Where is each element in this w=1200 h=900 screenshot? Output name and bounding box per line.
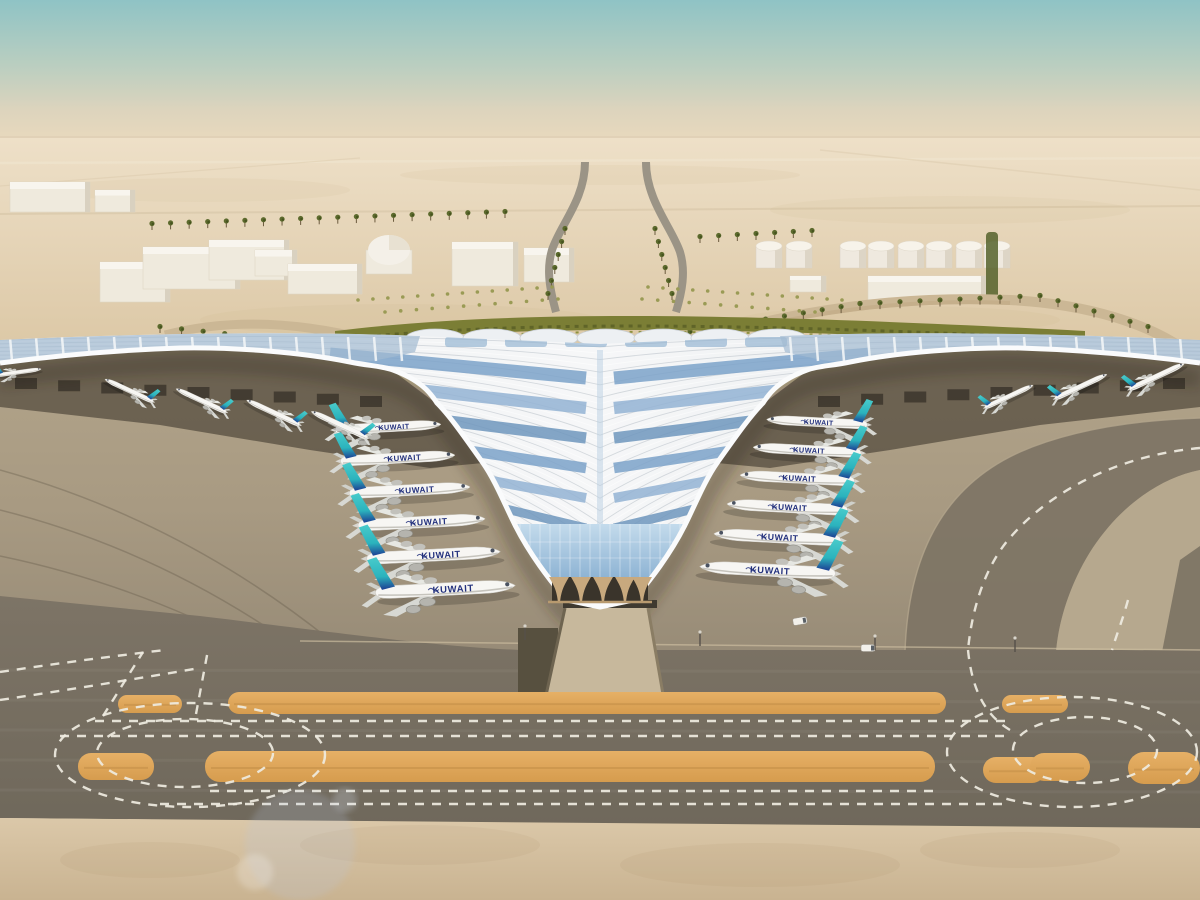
orange-taxiway-strip — [1128, 752, 1200, 784]
shrub — [719, 303, 723, 307]
shrub — [476, 290, 480, 294]
shrub — [461, 291, 465, 295]
warehouse-building — [288, 264, 362, 294]
shrub — [556, 297, 560, 301]
airline-title-text: KUWAIT — [387, 453, 421, 464]
shrub — [520, 287, 524, 291]
shrub — [825, 297, 829, 301]
scene-canvas: KUWAITKUWAITKUWAITKUWAITKUWAITKUWAITKUWA… — [0, 0, 1200, 900]
orange-taxiway-strip — [1030, 753, 1090, 781]
airline-title-text: KUWAIT — [378, 422, 410, 433]
airline-title-text: KUWAIT — [410, 516, 448, 528]
shrub — [446, 305, 450, 309]
shrub — [781, 294, 785, 298]
fuel-tank — [926, 241, 952, 268]
shrub — [750, 305, 754, 309]
shrub — [535, 286, 539, 290]
lens-flare-spot — [333, 788, 357, 812]
shrub — [766, 293, 770, 297]
shrub — [676, 287, 680, 291]
shrub — [840, 298, 844, 302]
shrub — [703, 302, 707, 306]
shrub — [356, 298, 360, 302]
fuel-tank — [868, 241, 894, 268]
shrub — [430, 307, 434, 311]
fuel-tank — [840, 241, 866, 268]
airline-title-text: KUWAIT — [399, 485, 435, 496]
airport-aerial-rendering: KUWAITKUWAITKUWAITKUWAITKUWAITKUWAITKUWA… — [0, 0, 1200, 900]
shrub — [525, 300, 529, 304]
airline-title-text: KUWAIT — [793, 445, 825, 456]
airline-title-text: KUWAIT — [761, 531, 799, 543]
lens-flare-spot — [237, 854, 273, 890]
shrub — [371, 297, 375, 301]
shrub — [813, 310, 817, 314]
shrub — [416, 294, 420, 298]
shrub — [782, 308, 786, 312]
warehouse-building — [10, 182, 90, 212]
shrub — [550, 285, 554, 289]
shrub — [505, 288, 509, 292]
shrub — [446, 292, 450, 296]
airline-title-text: KUWAIT — [782, 473, 816, 484]
shrub — [751, 292, 755, 296]
shrub — [661, 286, 665, 290]
shrub — [640, 297, 644, 301]
fuel-tank — [898, 241, 924, 268]
shrub — [735, 304, 739, 308]
shrub — [766, 307, 770, 311]
shrub — [431, 293, 435, 297]
airline-title-text: KUWAIT — [750, 565, 791, 577]
fuel-tank-farm — [756, 241, 1010, 268]
shrub — [462, 304, 466, 308]
shrub — [672, 300, 676, 304]
orange-taxiway-strip — [205, 751, 935, 782]
shrub — [810, 296, 814, 300]
windbreak-trees — [986, 232, 998, 300]
airline-title-text: KUWAIT — [421, 549, 461, 561]
fuel-tank — [786, 241, 812, 268]
fuel-tank — [756, 241, 782, 268]
orange-taxiway-strip — [228, 692, 946, 714]
service-vehicle — [861, 645, 875, 652]
shrub — [795, 295, 799, 299]
shrub — [797, 309, 801, 313]
dome-building — [366, 235, 412, 274]
shrub — [646, 285, 650, 289]
shrub — [386, 296, 390, 300]
warehouse-building — [452, 242, 518, 286]
warehouse-building — [95, 190, 135, 212]
shrub — [509, 301, 513, 305]
warehouse-building — [790, 276, 826, 292]
shrub — [401, 295, 405, 299]
shrub — [691, 288, 695, 292]
shrub — [721, 290, 725, 294]
airline-title-text: KUWAIT — [771, 502, 807, 513]
fuel-tank — [956, 241, 982, 268]
shrub — [491, 289, 495, 293]
shrub — [706, 289, 710, 293]
sky — [0, 0, 1200, 142]
shrub — [656, 298, 660, 302]
shrub — [736, 291, 740, 295]
shrub — [415, 308, 419, 312]
entrance-colonnade — [548, 577, 652, 603]
shrub — [493, 302, 497, 306]
shrub — [399, 309, 403, 313]
shrub — [478, 303, 482, 307]
shrub — [687, 301, 691, 305]
shrub — [540, 298, 544, 302]
shrub — [383, 310, 387, 314]
orange-taxiway-strip — [78, 753, 154, 780]
